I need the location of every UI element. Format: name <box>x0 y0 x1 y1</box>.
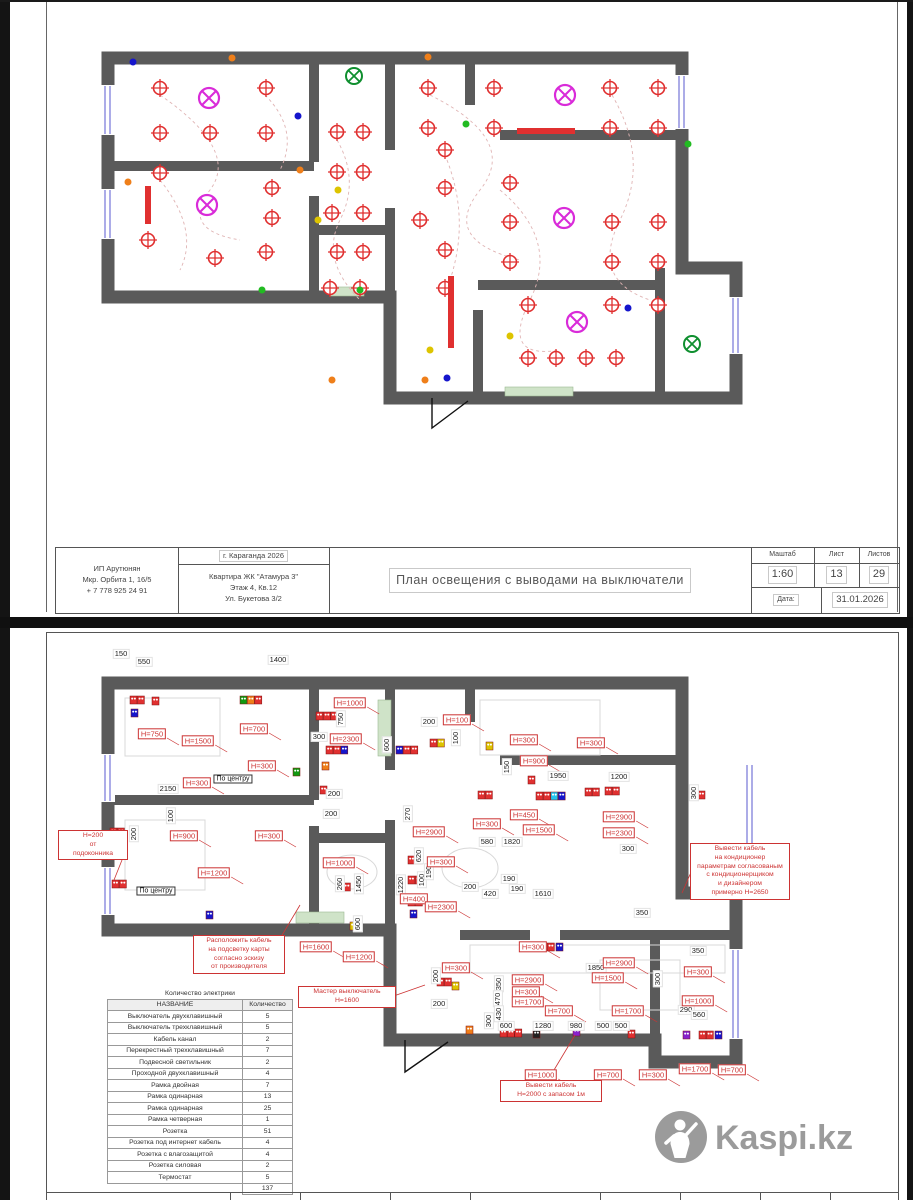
outlet-icon <box>317 714 319 716</box>
outlet-icon <box>417 858 419 860</box>
leader-line <box>574 1015 586 1022</box>
table-cell: 5 <box>243 1172 293 1184</box>
outlet-icon <box>536 792 543 800</box>
table-cell: Термостат <box>108 1172 243 1184</box>
leader-line <box>558 1079 570 1086</box>
outlet-icon <box>331 712 338 720</box>
window-gap <box>675 75 689 129</box>
outlet-icon <box>430 739 437 747</box>
leader-line <box>429 903 441 910</box>
outlet-icon <box>537 1032 539 1034</box>
stamp-sheet-value: 13 <box>814 563 860 588</box>
outlet-icon <box>541 945 543 947</box>
leader-line <box>541 996 553 1003</box>
table-cell: 2 <box>243 1160 293 1172</box>
table-row: Выключатель двухклавишный5 <box>108 1011 293 1023</box>
outlet-icon <box>206 911 213 919</box>
outlet-icon <box>134 698 136 700</box>
outlet-icon <box>684 1033 686 1035</box>
table-cell: 25 <box>243 1103 293 1115</box>
stamp-scale-label: Маштаб <box>751 548 815 564</box>
switch-dot-icon <box>125 179 132 186</box>
table-cell: Подвесной светильник <box>108 1057 243 1069</box>
outlet-icon <box>412 858 414 860</box>
stamp-author-line: Мкр. Орбита 1, 16/5 <box>83 575 152 586</box>
outlet-icon <box>614 789 616 791</box>
outlet-icon <box>112 880 119 888</box>
furniture <box>442 848 498 888</box>
table-cell: 5 <box>243 1022 293 1034</box>
stamp-sheet-label: Лист <box>814 548 860 564</box>
outlet-icon <box>557 945 559 947</box>
outlet-icon <box>490 744 492 746</box>
furniture <box>125 698 220 756</box>
switch-wire-dashed <box>160 180 187 270</box>
leader-line <box>623 1079 635 1086</box>
outlet-icon <box>543 792 550 800</box>
outlet-icon <box>414 912 416 914</box>
outlet-icon <box>453 984 455 986</box>
outlet-icon <box>616 789 618 791</box>
title-block: ИП Арутюнян Мкр. Орбита 1, 16/5 + 7 778 … <box>55 547 900 614</box>
outlet-icon <box>558 792 565 800</box>
outlet-icon <box>417 878 419 880</box>
linear-light-icon <box>517 128 575 134</box>
leader-line <box>356 867 368 874</box>
window-gap <box>729 297 743 354</box>
leader-line <box>747 1074 759 1081</box>
outlet-icon <box>511 1031 513 1033</box>
table-cell: Рамка одинарная <box>108 1091 243 1103</box>
outlet-icon <box>586 790 588 792</box>
outlet-icon <box>121 830 123 832</box>
switch-dot-icon <box>130 59 137 66</box>
table-row: Перекрестный трехклавишный7 <box>108 1045 293 1057</box>
outlet-icon <box>559 794 561 796</box>
outlet-icon <box>519 1031 521 1033</box>
outlet-icon <box>415 898 422 906</box>
switch-dot-icon <box>463 121 470 128</box>
table-cell: Рамка двойная <box>108 1080 243 1092</box>
outlet-icon <box>294 770 296 772</box>
leader-line <box>363 743 375 750</box>
outlet-icon <box>438 980 440 982</box>
window-gap <box>101 867 115 915</box>
outlet-icon <box>153 699 155 701</box>
kaspi-watermark: Kaspi.kz <box>653 1109 893 1179</box>
outlet-icon <box>123 882 125 884</box>
outlet-icon <box>249 698 251 700</box>
outlet-icon <box>540 943 547 951</box>
outlet-icon <box>412 748 414 750</box>
outlet-icon <box>516 1031 518 1033</box>
outlet-icon <box>259 698 261 700</box>
outlet-icon <box>332 714 334 716</box>
outlet-icon <box>452 982 459 990</box>
outlet-icon <box>351 924 353 926</box>
table-cell: 4 <box>243 1137 293 1149</box>
outlet-icon <box>130 696 137 704</box>
outlet-icon <box>466 1026 473 1034</box>
table-cell: Перекрестный трехклавишный <box>108 1045 243 1057</box>
outlet-icon <box>350 922 357 930</box>
table-cell: 7 <box>243 1080 293 1092</box>
outlet-icon <box>585 788 592 796</box>
leader-line <box>636 821 648 828</box>
outlet-icon <box>408 898 415 906</box>
outlet-icon <box>119 830 121 832</box>
outlet-icon <box>606 789 608 791</box>
outlet-icon <box>700 1033 702 1035</box>
outlet-icon <box>116 882 118 884</box>
leader-line <box>446 836 458 843</box>
window-gap <box>101 189 115 239</box>
outlet-icon <box>532 778 534 780</box>
outlet-icon <box>504 1031 506 1033</box>
outlet-icon <box>327 714 329 716</box>
furniture <box>600 960 680 1010</box>
outlet-icon <box>629 1032 631 1034</box>
outlet-icon <box>478 791 485 799</box>
table-cell: Розетка с влагозащитой <box>108 1149 243 1161</box>
switch-dot-icon <box>297 167 304 174</box>
outlet-icon <box>562 794 564 796</box>
outlet-icon <box>479 793 481 795</box>
outlet-icon <box>247 696 254 704</box>
outlet-icon <box>336 883 343 891</box>
outlet-icon <box>529 778 531 780</box>
table-cell: Кабель канал <box>108 1034 243 1046</box>
leader-line <box>458 911 470 918</box>
outlet-icon <box>702 793 704 795</box>
outlet-icon <box>335 748 337 750</box>
outlet-icon <box>507 1029 514 1037</box>
outlet-icon <box>551 945 553 947</box>
outlet-icon <box>605 787 612 795</box>
outlet-icon <box>577 1030 579 1032</box>
outlet-icon <box>121 882 123 884</box>
cut-stamp-line <box>46 1192 898 1193</box>
table-row: Кабель канал2 <box>108 1034 293 1046</box>
outlet-icon <box>141 698 143 700</box>
stamp-object-line: Квартира ЖК "Атамура 3" <box>209 572 298 583</box>
leader-line <box>277 770 289 777</box>
switch-dot-icon <box>259 287 266 294</box>
table-cell: Розетка под интернет кабель <box>108 1137 243 1149</box>
outlet-icon <box>552 794 554 796</box>
switch-dot-icon <box>427 347 434 354</box>
leader-line <box>713 976 725 983</box>
outlet-icon <box>596 790 598 792</box>
outlet-icon <box>470 1028 472 1030</box>
leader-line <box>539 819 551 826</box>
outlet-icon <box>113 882 115 884</box>
outlet-icon <box>407 748 409 750</box>
table-cell: Рамка одинарная <box>108 1103 243 1115</box>
leader-line <box>167 738 179 745</box>
outlet-icon <box>343 883 350 891</box>
table-header-qty: Количество <box>243 999 293 1011</box>
leader-line <box>114 860 122 880</box>
cut-stamp-line <box>680 1192 681 1200</box>
cut-stamp-line <box>760 1192 761 1200</box>
outlet-icon <box>114 830 116 832</box>
outlet-icon <box>683 1031 690 1039</box>
switch-wire-dashed <box>500 190 560 351</box>
outlet-icon <box>534 1032 536 1034</box>
outlet-icon <box>132 711 134 713</box>
outlet-icon <box>325 714 327 716</box>
outlet-icon <box>293 768 300 776</box>
outlet-icon <box>409 900 411 902</box>
outlet-icon <box>207 913 209 915</box>
table-cell: 51 <box>243 1126 293 1138</box>
leader-line <box>502 828 514 835</box>
outlet-icon <box>316 712 323 720</box>
outlet-icon <box>487 744 489 746</box>
leader-line <box>269 733 281 740</box>
table-row: Рамка одинарная13 <box>108 1091 293 1103</box>
switch-dot-icon <box>444 375 451 382</box>
leader-line <box>284 840 296 847</box>
outlet-icon <box>412 900 414 902</box>
outlet-icon <box>403 746 410 754</box>
switch-dot-icon <box>507 333 514 340</box>
table-row: Выключатель трехклавишный5 <box>108 1022 293 1034</box>
outlet-icon <box>437 739 444 747</box>
outlet-icon <box>537 794 539 796</box>
cut-stamp-line <box>600 1192 601 1200</box>
table-cell: Проходной двухклавишный <box>108 1068 243 1080</box>
window-gap <box>101 754 115 802</box>
outlet-icon <box>345 885 347 887</box>
stamp-object-line: Ул. Букетова 3/2 <box>225 594 282 605</box>
leader-line <box>456 866 468 873</box>
outlet-icon <box>439 741 441 743</box>
furniture <box>480 700 600 755</box>
stamp-object-line: Этаж 4, Кв.12 <box>230 583 277 594</box>
table-header-name: НАЗВАНИЕ <box>108 999 243 1011</box>
table-cell: Рамка четверная <box>108 1114 243 1126</box>
stamp-date-value: 31.01.2026 <box>821 587 899 613</box>
outlet-icon <box>431 741 433 743</box>
outlet-icon <box>703 1033 705 1035</box>
table-cell: 7 <box>243 1045 293 1057</box>
furniture <box>125 820 205 890</box>
outlet-icon <box>412 878 414 880</box>
outlet-icon <box>547 943 554 951</box>
outlet-icon <box>528 776 535 784</box>
sill <box>505 387 573 396</box>
switch-dot-icon <box>295 113 302 120</box>
furniture <box>470 945 725 973</box>
outlet-icon <box>628 1030 635 1038</box>
table-cell: Розетка <box>108 1126 243 1138</box>
stamp-sheets-label: Листов <box>859 548 899 564</box>
table-row: Розетка под интернет кабель4 <box>108 1137 293 1149</box>
drawing-title: План освещения с выводами на выключатели <box>389 568 691 592</box>
outlet-icon <box>573 1028 580 1036</box>
outlet-icon <box>415 876 422 884</box>
table-cell: 5 <box>243 1011 293 1023</box>
leader-line <box>545 1006 557 1013</box>
window-gap <box>743 764 755 854</box>
outlet-icon <box>131 698 133 700</box>
outlet-icon <box>699 793 701 795</box>
leader-line <box>367 707 379 714</box>
outlet-icon <box>715 1031 722 1039</box>
outlet-icon <box>467 1028 469 1030</box>
outlet-icon <box>448 980 450 982</box>
stamp-city: г. Караганда 2026 <box>219 550 288 563</box>
leader-line <box>212 787 224 794</box>
outlet-icon <box>555 794 557 796</box>
outlet-icon <box>256 698 258 700</box>
leader-line <box>668 1079 680 1086</box>
outlet-icon <box>323 764 325 766</box>
switch-dot-icon <box>422 377 429 384</box>
outlet-icon <box>408 856 415 864</box>
outlet-icon <box>396 746 403 754</box>
outlet-icon <box>335 714 337 716</box>
outlet-icon <box>415 856 422 864</box>
outlet-icon <box>320 714 322 716</box>
table-row: Рамка одинарная25 <box>108 1103 293 1115</box>
outlet-icon <box>156 699 158 701</box>
outlet-icon <box>489 793 491 795</box>
outlet-icon <box>131 709 138 717</box>
linear-light-icon <box>145 186 151 224</box>
outlet-icon <box>544 945 546 947</box>
switch-dot-icon <box>685 141 692 148</box>
outlet-icon <box>501 1031 503 1033</box>
outlet-icon <box>456 984 458 986</box>
outlet-icon <box>409 858 411 860</box>
table-row: Розетка51 <box>108 1126 293 1138</box>
outlet-icon <box>419 900 421 902</box>
outlet-icon <box>716 1033 718 1035</box>
outlet-icon <box>417 900 419 902</box>
table-cell: 4 <box>243 1068 293 1080</box>
outlet-icon <box>482 793 484 795</box>
outlet-icon <box>509 1031 511 1033</box>
switch-dot-icon <box>329 377 336 384</box>
table-cell: 2 <box>243 1034 293 1046</box>
switch-dot-icon <box>625 305 632 312</box>
outlet-icon <box>574 1030 576 1032</box>
switch-dot-icon <box>425 54 432 61</box>
table-cell: 4 <box>243 1149 293 1161</box>
outlet-icon <box>139 698 141 700</box>
outlet-icon <box>241 698 243 700</box>
table-row: Розетка с влагозащитой4 <box>108 1149 293 1161</box>
table-row: Рамка двойная7 <box>108 1080 293 1092</box>
stamp-author-line: ИП Арутюнян <box>90 564 143 575</box>
outlet-icon <box>441 980 443 982</box>
leader-line <box>636 837 648 844</box>
outlet-icon <box>708 1033 710 1035</box>
outlet-icon <box>719 1033 721 1035</box>
sill <box>296 912 344 923</box>
table-cell: 2 <box>243 1057 293 1069</box>
outlet-icon <box>547 794 549 796</box>
outlet-icon <box>434 741 436 743</box>
outlet-icon <box>330 748 332 750</box>
outlet-icon <box>337 748 339 750</box>
outlet-icon <box>515 1029 522 1037</box>
outlet-icon <box>324 788 326 790</box>
outlet-icon <box>326 746 333 754</box>
stamp-sheets-value: 29 <box>859 563 899 588</box>
switch-dot-icon <box>335 187 342 194</box>
stamp-scale-value: 1:60 <box>751 563 815 588</box>
window-gap <box>101 85 115 135</box>
leader-line <box>715 1005 727 1012</box>
switch-dot-icon <box>229 55 236 62</box>
table-cell: Выключатель двухклавишный <box>108 1011 243 1023</box>
cut-stamp-line <box>830 1192 831 1200</box>
table-row: Термостат5 <box>108 1172 293 1184</box>
outlet-icon <box>337 885 339 887</box>
table-row: Проходной двухклавишный4 <box>108 1068 293 1080</box>
outlet-icon <box>437 978 444 986</box>
outlet-icon <box>135 711 137 713</box>
outlet-icon <box>408 876 415 884</box>
outlet-icon <box>446 980 448 982</box>
outlet-icon <box>419 858 421 860</box>
table-cell: 1 <box>243 1114 293 1126</box>
outlet-icon <box>340 885 342 887</box>
stamp-author-cell: ИП Арутюнян Мкр. Орбита 1, 16/5 + 7 778 … <box>56 548 179 613</box>
outlet-icon <box>411 912 413 914</box>
leader-line <box>712 1073 724 1080</box>
outlet-icon <box>706 1031 713 1039</box>
linear-light-icon <box>448 276 454 348</box>
leader-line <box>215 745 227 752</box>
leader-line <box>472 724 484 731</box>
outlet-icon <box>400 748 402 750</box>
outlet-icon <box>609 789 611 791</box>
leader-line <box>606 747 618 754</box>
outlet-icon <box>347 885 349 887</box>
leader-line <box>549 765 561 772</box>
outlet-icon <box>551 792 558 800</box>
leader-line <box>556 834 568 841</box>
stamp-date-label: Дата: <box>751 587 822 613</box>
outlet-icon <box>485 791 492 799</box>
table-title: Количество электрики <box>108 988 293 999</box>
outlet-icon <box>327 748 329 750</box>
window-gap <box>729 949 743 1039</box>
outlet-icon <box>326 764 328 766</box>
table-cell: 13 <box>243 1091 293 1103</box>
leader-line <box>548 951 560 958</box>
outlet-icon <box>240 696 247 704</box>
cut-stamp-line <box>300 1192 301 1200</box>
cut-stamp-line <box>230 1192 231 1200</box>
table-cell: Розетка силовая <box>108 1160 243 1172</box>
outlet-icon <box>320 786 327 794</box>
outlet-icon <box>699 1031 706 1039</box>
outlet-icon <box>592 788 599 796</box>
electric-count-table: Количество электрики НАЗВАНИЕ Количество… <box>107 988 293 1195</box>
outlet-icon <box>500 1029 507 1037</box>
outlet-icon <box>698 791 705 799</box>
outlet-icon <box>594 790 596 792</box>
outlet-icon <box>405 748 407 750</box>
outlet-icon <box>137 696 144 704</box>
outlet-icon <box>397 748 399 750</box>
